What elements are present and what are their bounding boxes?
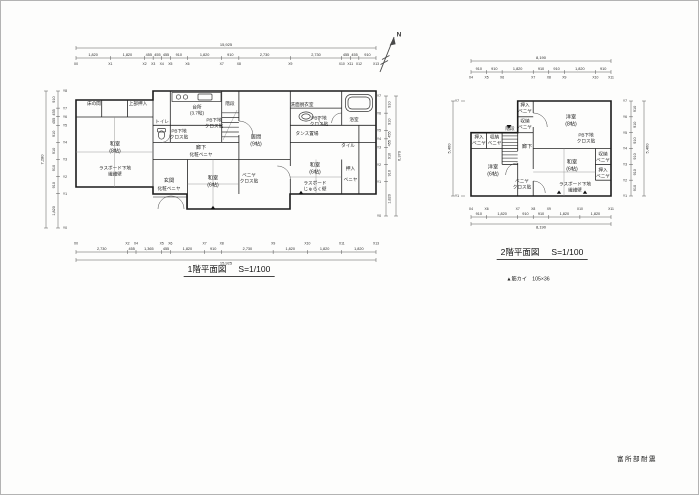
north-arrow-icon	[380, 37, 396, 72]
dim-value: 910	[52, 148, 56, 154]
grid-label: X0	[74, 242, 78, 246]
floor1-caption: 1階平面図S=1/100	[184, 263, 275, 277]
room-label-tansu: タンス置場	[296, 131, 319, 137]
dim-value: 1,820	[286, 247, 296, 251]
kitchen-sink	[198, 94, 212, 100]
dim-value: 910	[553, 67, 559, 71]
room-note-tile: タイル	[341, 143, 355, 149]
stove-burner-icon	[183, 95, 187, 99]
room-label-bath: 浴室	[349, 117, 358, 123]
dim-value: 910	[52, 131, 56, 137]
dim-value: 1,820	[497, 212, 507, 216]
room-label-oshiire-right-2f: 押入 ベニヤ	[596, 167, 610, 178]
grid-label: Y6	[377, 111, 381, 115]
grid-label: X1	[108, 62, 112, 66]
dim-total: 5,460	[645, 143, 650, 154]
room-label-oshiire-upper: 上部押入	[129, 101, 147, 107]
dim-value: 910	[476, 212, 482, 216]
dim-value: 910	[476, 67, 482, 71]
dim-value: 910	[388, 153, 392, 159]
grid-label: X9	[547, 207, 551, 211]
grid-label: Y0	[377, 214, 381, 218]
dim-total: 5,460	[447, 143, 452, 154]
grid-label: Y1	[63, 192, 67, 196]
grid-label: Y3	[63, 158, 67, 162]
dim-value: 910	[633, 122, 637, 128]
grid-label: X4	[469, 76, 473, 80]
grid-label: Y0	[63, 226, 67, 230]
grid-label: Y6	[623, 115, 627, 119]
room-label-tokonoma: 床の間	[87, 101, 101, 107]
dim-value: 910	[210, 247, 216, 251]
room-label-yoshitsu8: 洋室 (8帖)	[565, 115, 577, 128]
dim-value: 1,365	[144, 247, 154, 251]
grid-label: X5	[160, 242, 164, 246]
room-label-oshiire-top-2f: 押入 ベニヤ	[518, 102, 532, 113]
grid-label: X7	[202, 242, 206, 246]
dim-value: 2,730	[243, 247, 253, 251]
grid-label: X8	[531, 207, 535, 211]
dim-value: 910	[176, 53, 182, 57]
floor1-scale-text: S=1/100	[238, 264, 270, 274]
room-note-senmen: PB下地 クロス貼	[310, 115, 328, 126]
room-note-ima: ベニヤ クロス貼	[240, 172, 258, 183]
toilet-tank-icon	[158, 129, 166, 133]
grid-label: Y2	[63, 175, 67, 179]
grid-label: Y7	[455, 99, 459, 103]
grid-label: Y2	[377, 163, 381, 167]
room-label-shuno-left-2f: 収納 ベニヤ	[488, 134, 502, 145]
room-note-toilet: PB下地 クロス貼	[170, 128, 188, 139]
grid-label: X4	[134, 242, 138, 246]
dim-total: 6,370	[397, 150, 402, 161]
dim-value: 2,730	[260, 53, 270, 57]
dim-value: 455	[129, 247, 135, 251]
room-note-oshiire-r: ベニヤ	[344, 177, 358, 183]
room-label-kitchen: 台所 (3.7帖)	[190, 104, 204, 115]
title-stamp: 富所部耐震	[617, 453, 657, 463]
dim-value: 1,820	[388, 194, 392, 204]
grid-label: X11	[347, 62, 353, 66]
grid-label: Y3	[377, 146, 381, 150]
dim-value: 910	[538, 67, 544, 71]
room-note-washitsu6-2f: ラスボード下地 繊維壁	[559, 181, 591, 192]
grid-label: X7	[220, 62, 224, 66]
dim-value: 455	[343, 53, 349, 57]
dim-total: 15,925	[220, 42, 233, 47]
dim-total: 8,190	[536, 225, 547, 230]
room-label-stairs-1f: 階段	[225, 101, 234, 107]
dim-value: 910	[52, 165, 56, 171]
grid-label: Y7	[377, 94, 381, 98]
room-label-oshiire-left-2f: 押入 ベニヤ	[472, 134, 486, 145]
dim-total: 7,280	[40, 154, 45, 165]
dim-value: 910	[52, 182, 56, 188]
room-note-kitchen: PB下地 クロス貼	[205, 117, 223, 128]
grid-label: Y1	[623, 194, 627, 198]
grid-label: Y3	[623, 163, 627, 167]
dim-value: 1,820	[123, 53, 133, 57]
dim-value: 1,820	[560, 212, 570, 216]
grid-label: X9	[562, 76, 566, 80]
stove-burner-icon	[176, 95, 180, 99]
grid-label: Y2	[623, 178, 627, 182]
room-label-senmen: 洗面脱衣室	[291, 102, 314, 108]
room-label-hall-1f: 廊下	[196, 145, 206, 152]
room-label-washitsu6r: 和室 (6帖)	[309, 163, 321, 176]
dim-value: 455	[52, 109, 56, 115]
dim-value: 1,820	[513, 67, 523, 71]
dim-value: 455	[351, 53, 357, 57]
floor2-caption-text: 2階平面図	[501, 247, 540, 257]
dim-value: 1,820	[88, 53, 98, 57]
dim-value: 910	[364, 53, 370, 57]
dim-value: 1,820	[183, 247, 193, 251]
room-label-washitsu6c: 和室 (6帖)	[207, 176, 219, 189]
room-label-washitsu8: 和室 (8帖)	[109, 142, 121, 155]
dim-value: 910	[227, 53, 233, 57]
room-label-hall-2f: 廊下	[522, 144, 532, 151]
grid-label: X11	[608, 76, 614, 80]
floor1-caption-text: 1階平面図	[188, 264, 227, 274]
grid-label: Y5	[377, 128, 381, 132]
dim-value: 455	[388, 131, 392, 137]
dim-value: 910	[491, 67, 497, 71]
dim-value: 910	[388, 170, 392, 176]
room-label-washitsu6-2f: 和室 (6帖)	[566, 160, 578, 173]
dim-value: 455	[163, 53, 169, 57]
grid-label: Y4	[63, 141, 67, 145]
dim-value: 910	[52, 96, 56, 102]
dim-value: 910	[600, 67, 606, 71]
dim-value: 455	[163, 247, 169, 251]
dim-value: 910	[538, 212, 544, 216]
room-note-yoshitsu8: PB下地 クロス貼	[577, 132, 595, 143]
dim-value: 2,730	[97, 247, 107, 251]
grid-label: Y1	[377, 180, 381, 184]
grid-label: X8	[220, 242, 224, 246]
grid-label: Y5	[63, 123, 67, 127]
grid-label: X6	[168, 242, 172, 246]
bathtub-icon	[348, 97, 370, 109]
grid-label: X8	[237, 62, 241, 66]
dim-value: 1,820	[591, 212, 601, 216]
dim-value: 910	[633, 137, 637, 143]
north-label: N	[397, 32, 402, 39]
grid-label: X13	[373, 242, 379, 246]
room-label-shuno-top-2f: 収納 ベニヤ	[518, 118, 532, 129]
grid-label: X11	[339, 242, 345, 246]
grid-label: X4	[160, 62, 164, 66]
grid-label: X3	[151, 62, 155, 66]
grid-label: X10	[592, 76, 598, 80]
dim-value: 1,820	[200, 53, 210, 57]
room-note-washitsu6r: ラスボード じゅらく壁	[304, 180, 327, 191]
grid-label: Y7	[623, 99, 627, 103]
dimension-layer: X0X1X2X3X4X5X6X7X8X9X10X11X12X131,8201,8…	[40, 42, 650, 266]
grid-label: Y5	[623, 131, 627, 135]
dim-value: 910	[633, 106, 637, 112]
grid-label: X5	[484, 76, 488, 80]
grid-label: Y4	[623, 147, 627, 151]
grid-label: X5	[168, 62, 172, 66]
dim-value: 910	[388, 119, 392, 125]
room-label-genkan: 玄関	[164, 178, 174, 185]
dim-value: 910	[633, 185, 637, 191]
dim-value: 1,820	[354, 247, 364, 251]
grid-label: X2	[125, 242, 129, 246]
grid-label: X7	[516, 207, 520, 211]
drawing-sheet: X0X1X2X3X4X5X6X7X8X9X10X11X12X131,8201,8…	[0, 0, 699, 495]
grid-label: Y7	[63, 106, 67, 110]
dim-value: 455	[146, 53, 152, 57]
plan-drawing: X0X1X2X3X4X5X6X7X8X9X10X11X12X131,8201,8…	[1, 1, 699, 495]
grid-label: X10	[339, 62, 345, 66]
grid-label: X13	[373, 62, 379, 66]
grid-label: X10	[304, 242, 310, 246]
grid-label: X6	[185, 62, 189, 66]
dim-value: 455	[154, 53, 160, 57]
dim-value: 1,820	[320, 247, 330, 251]
room-note-hall-1f: 化粧ベニヤ	[190, 152, 213, 158]
room-label-ima: 居間 (9帖)	[250, 135, 262, 148]
grid-label: X2	[142, 62, 146, 66]
dim-value: 455	[52, 118, 56, 124]
room-note-genkan: 化粧ベニヤ	[158, 186, 181, 192]
room-label-shuno-right-2f: 収納 ベニヤ	[596, 151, 610, 162]
kitchen-counter	[172, 93, 221, 102]
grid-label: X7	[531, 76, 535, 80]
grid-label: Y8	[63, 89, 67, 93]
room-note-washitsu8: ラスボード下地 繊維壁	[99, 165, 131, 176]
grid-label: X6	[484, 207, 488, 211]
room-label-toilet: トイレ	[155, 119, 169, 125]
grid-label: X4	[469, 207, 473, 211]
dim-value: 1,820	[575, 67, 585, 71]
grid-label: X9	[271, 242, 275, 246]
dim-value: 910	[522, 212, 528, 216]
floor2-scale-text: S=1/100	[551, 247, 583, 257]
grid-label: X8	[547, 76, 551, 80]
grid-label: X9	[288, 62, 292, 66]
dim-value: 1,820	[52, 206, 56, 216]
room-label-stairs-2f: 階段	[505, 126, 514, 132]
dim-value: 910	[388, 101, 392, 107]
dim-value: 455	[388, 140, 392, 146]
dim-value: 2,730	[311, 53, 321, 57]
grid-label: Y4	[377, 137, 381, 141]
dim-total: 8,190	[536, 55, 547, 60]
grid-label: X0	[74, 62, 78, 66]
grid-label: X10	[577, 207, 583, 211]
dim-value: 910	[633, 153, 637, 159]
grid-label: X6	[500, 76, 504, 80]
brace-note: ▲筋カイ 105×36	[506, 276, 549, 283]
grid-label: X11	[608, 207, 614, 211]
grid-label: Y6	[63, 115, 67, 119]
grid-label: X12	[356, 62, 362, 66]
grid-label: Y1	[455, 194, 459, 198]
floor2-caption: 2階平面図S=1/100	[497, 246, 588, 260]
floor1-fixtures	[158, 93, 373, 140]
dim-value: 910	[633, 169, 637, 175]
room-note-yoshitsu6: ベニヤ クロス貼	[513, 178, 531, 189]
room-label-yoshitsu6: 洋室 (6帖)	[487, 165, 499, 178]
room-label-oshiire-r: 押入	[346, 166, 355, 172]
